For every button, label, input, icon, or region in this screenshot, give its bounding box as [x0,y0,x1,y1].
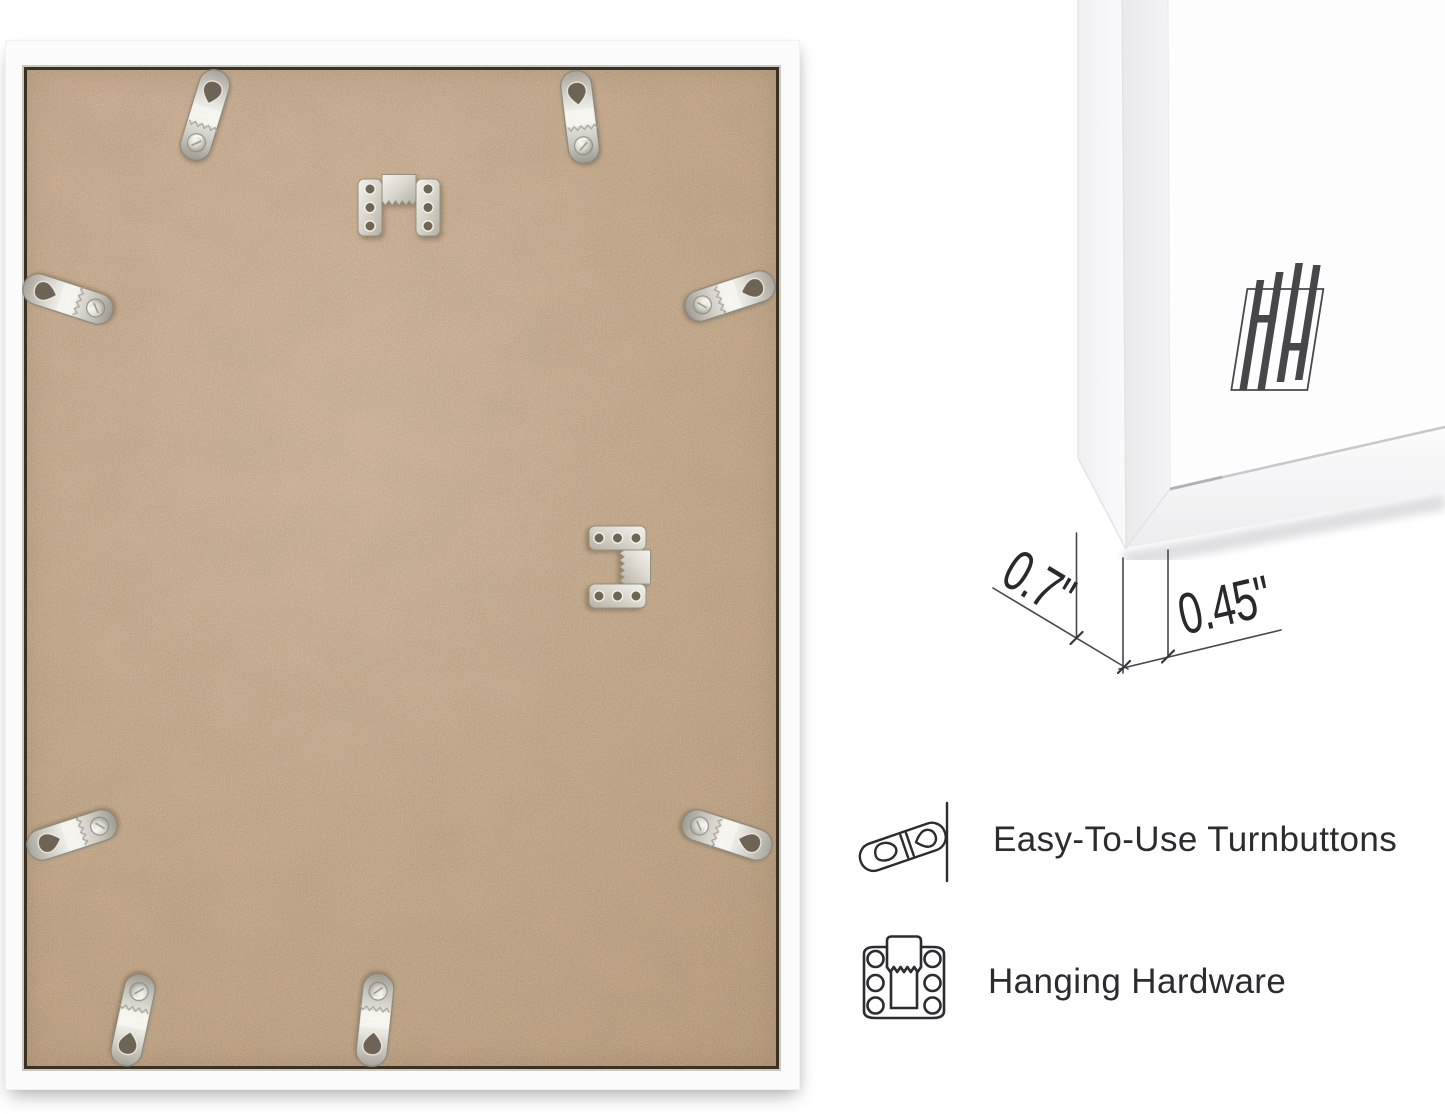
feature-label: Easy-To-Use Turnbuttons [993,819,1397,861]
frame-mat-area [1168,0,1445,489]
feature-label: Hanging Hardware [988,961,1286,1003]
sawtooth-hanger [357,172,441,238]
frame-corner-photo [1060,0,1445,560]
sawtooth-hanger [587,525,653,609]
frame-front-rail [1122,0,1170,548]
turnbutton-icon [850,798,954,886]
hanging-hardware-icon [854,932,954,1024]
frame-back-photo [5,40,800,1090]
frame-side-face [1078,0,1126,548]
product-image-canvas: 0.7" 0.45" Easy-To-Use Turnbuttons Han [0,0,1445,1114]
